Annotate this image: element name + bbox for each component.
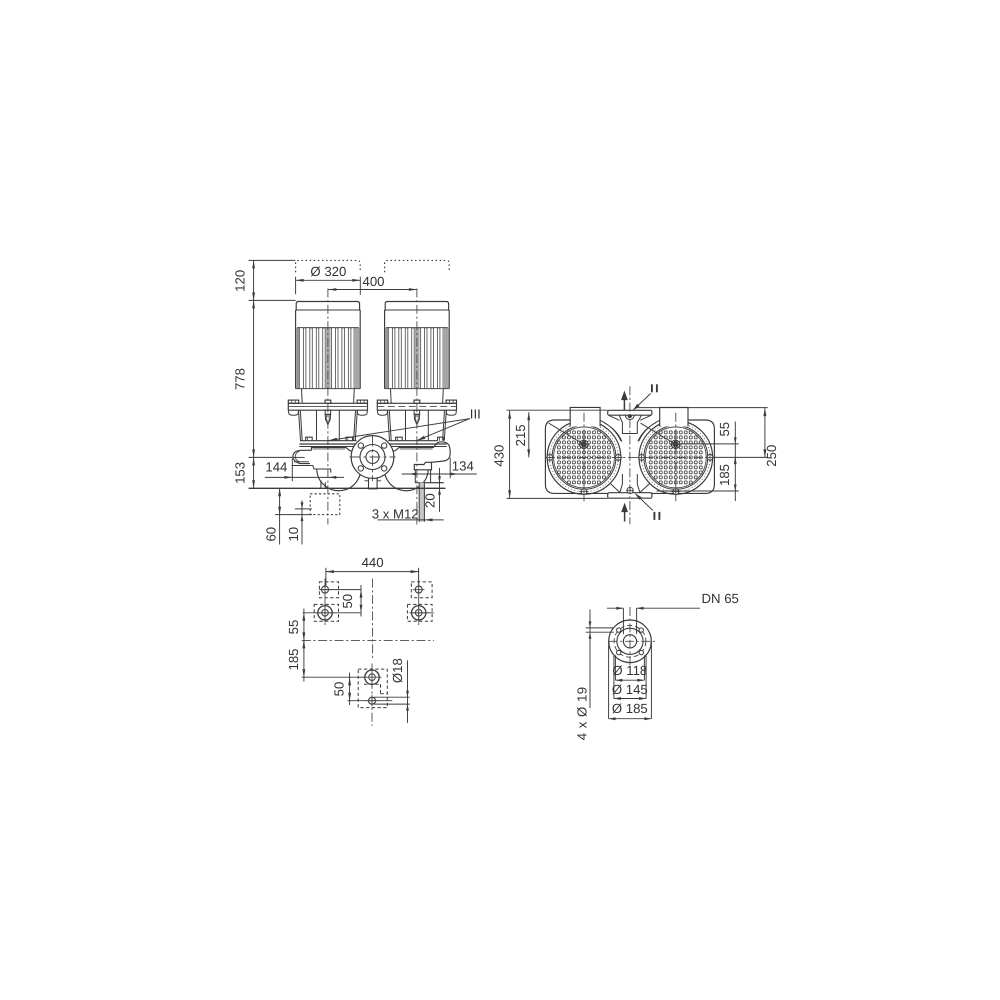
svg-text:400: 400 [362, 274, 384, 289]
svg-text:Ø18: Ø18 [390, 658, 405, 683]
svg-text:Ø 320: Ø 320 [310, 264, 346, 279]
svg-text:55: 55 [717, 422, 732, 437]
svg-text:50: 50 [340, 594, 355, 609]
svg-text:DN 65: DN 65 [702, 591, 739, 606]
svg-text:440: 440 [362, 555, 384, 570]
svg-text:20: 20 [423, 493, 438, 508]
svg-text:120: 120 [233, 270, 248, 292]
svg-text:Ø 145: Ø 145 [612, 682, 648, 697]
svg-text:III: III [470, 406, 481, 421]
svg-text:430: 430 [491, 445, 506, 467]
svg-text:4 x Ø 19: 4 x Ø 19 [575, 686, 590, 740]
svg-text:134: 134 [452, 458, 474, 473]
svg-text:185: 185 [717, 464, 732, 486]
svg-text:778: 778 [233, 368, 248, 390]
svg-text:60: 60 [264, 527, 279, 542]
svg-text:250: 250 [764, 445, 779, 467]
svg-text:Ø 185: Ø 185 [612, 701, 648, 716]
svg-text:3 x M12: 3 x M12 [372, 506, 419, 521]
svg-text:50: 50 [332, 682, 347, 697]
svg-text:153: 153 [233, 462, 248, 484]
svg-text:Ø 118: Ø 118 [612, 663, 647, 678]
svg-text:144: 144 [265, 460, 287, 475]
svg-text:55: 55 [286, 620, 301, 635]
svg-text:185: 185 [286, 648, 301, 670]
svg-text:215: 215 [513, 424, 528, 446]
svg-text:10: 10 [286, 527, 301, 542]
